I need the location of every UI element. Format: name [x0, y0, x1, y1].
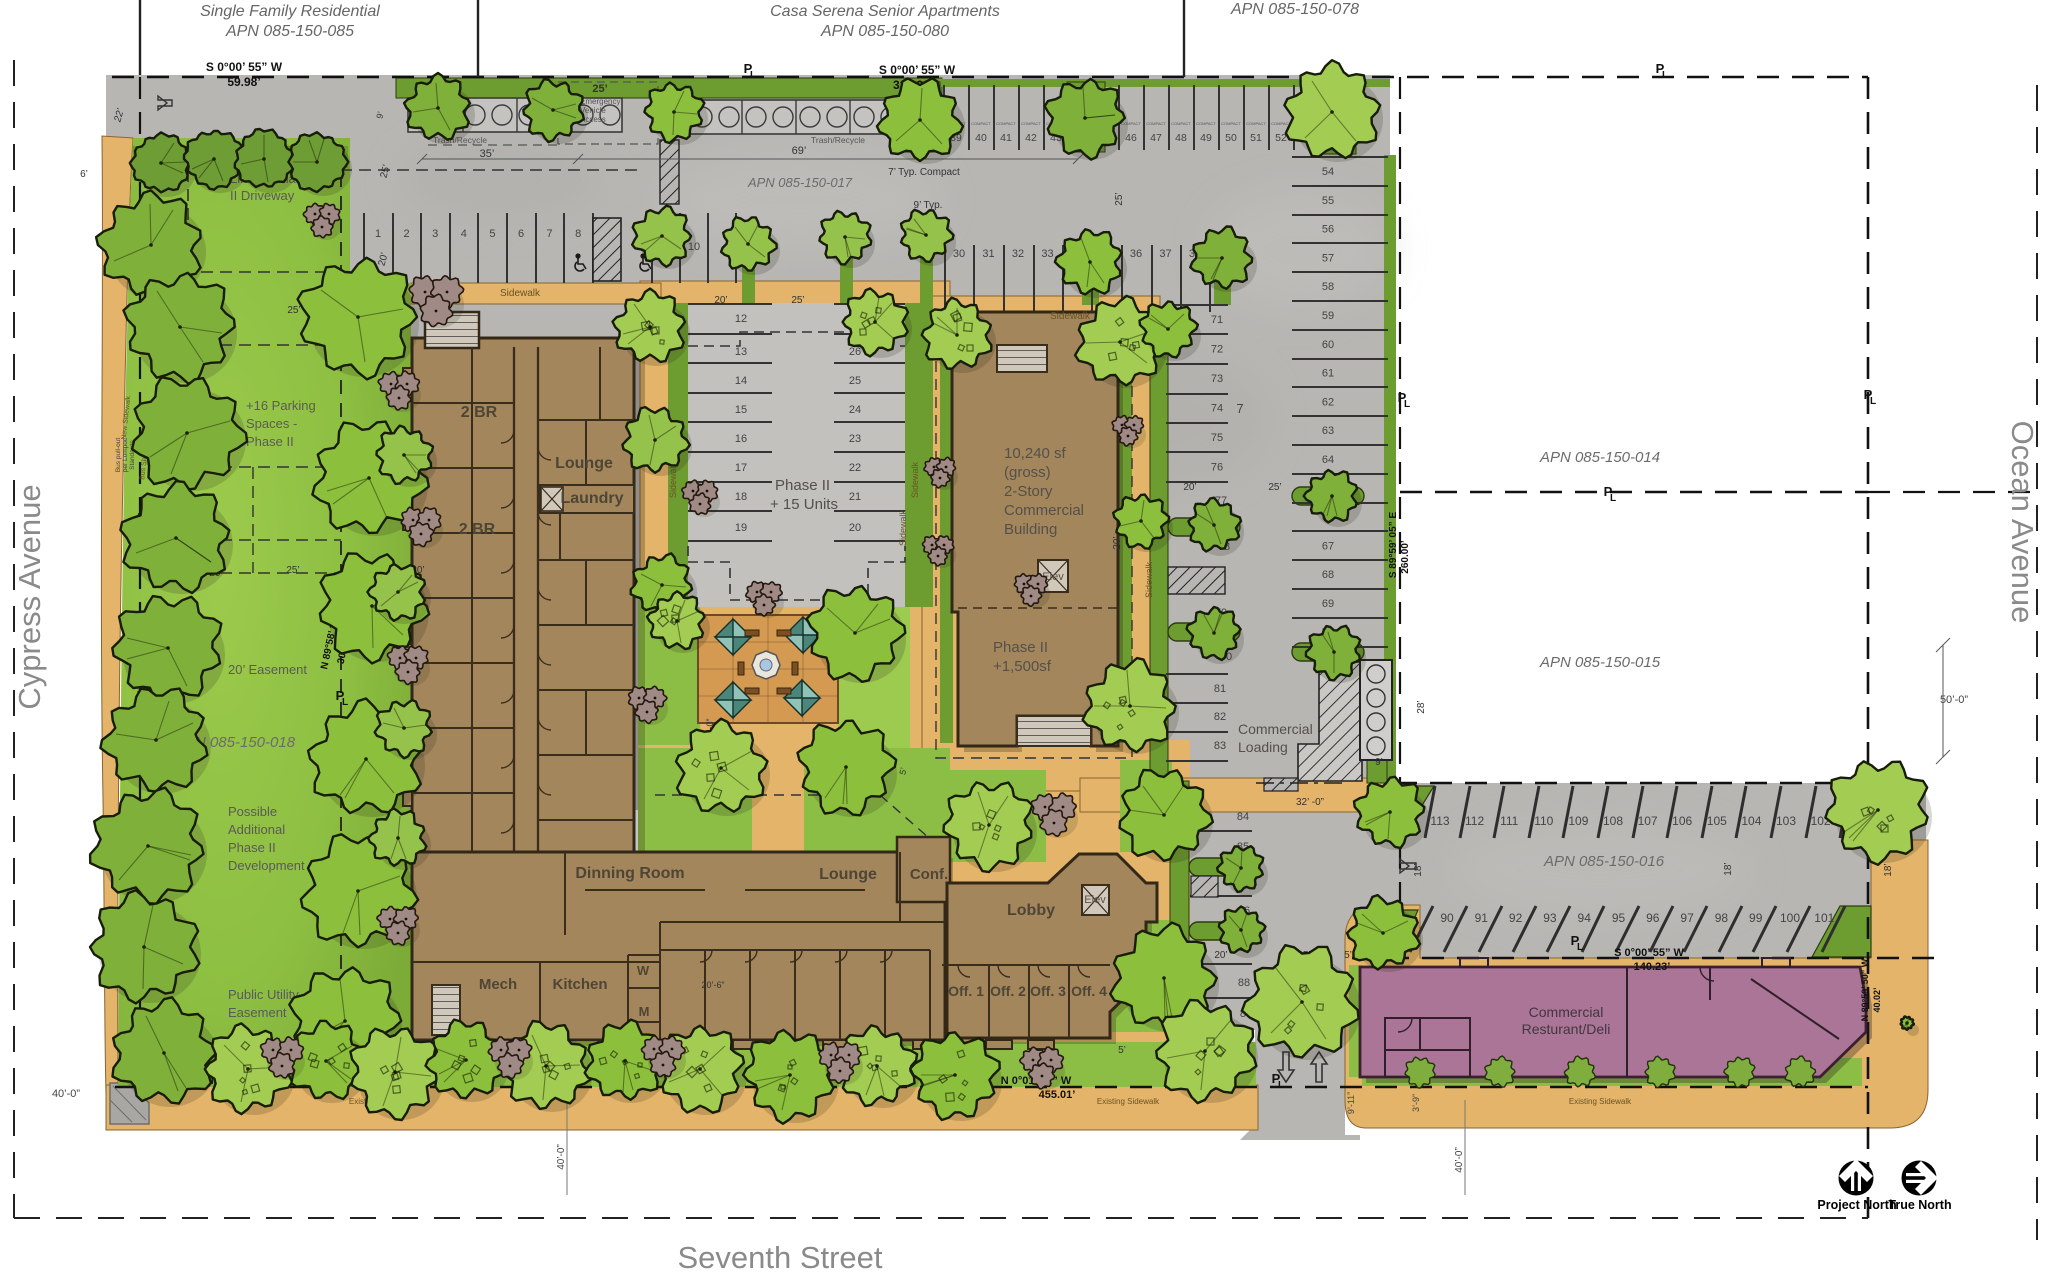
- svg-text:Sidewalk: Sidewalk: [910, 461, 920, 498]
- svg-text:97: 97: [1680, 911, 1694, 925]
- svg-text:55: 55: [1322, 195, 1334, 207]
- svg-text:1: 1: [375, 228, 381, 240]
- svg-text:L: L: [1870, 396, 1876, 407]
- svg-text:20’: 20’: [714, 295, 727, 306]
- svg-text:Spaces -: Spaces -: [246, 416, 297, 431]
- svg-text:64: 64: [1322, 454, 1334, 466]
- svg-text:COMPACT: COMPACT: [971, 121, 991, 126]
- svg-text:106: 106: [1672, 814, 1692, 828]
- svg-text:41: 41: [1000, 132, 1012, 144]
- svg-text:L: L: [1662, 70, 1668, 81]
- svg-text:Resturant/Deli: Resturant/Deli: [1522, 1021, 1611, 1037]
- svg-text:104: 104: [1741, 814, 1761, 828]
- svg-text:111: 111: [1500, 814, 1519, 828]
- svg-text:Casa Serena Senior Apartments: Casa Serena Senior Apartments: [770, 3, 1000, 20]
- svg-text:Off. 2: Off. 2: [990, 983, 1026, 999]
- svg-text:17: 17: [735, 462, 747, 474]
- svg-text:Laundry: Laundry: [560, 490, 623, 507]
- svg-text:40: 40: [975, 132, 987, 144]
- svg-text:83: 83: [1214, 740, 1226, 752]
- svg-text:Emergency: Emergency: [580, 97, 620, 106]
- svg-text:108: 108: [1603, 814, 1623, 828]
- svg-text:Possible: Possible: [228, 804, 277, 819]
- svg-text:Cypress Avenue: Cypress Avenue: [12, 484, 47, 709]
- svg-text:Phase II: Phase II: [775, 477, 830, 494]
- svg-text:20’-6”: 20’-6”: [701, 980, 724, 990]
- svg-text:67: 67: [1322, 540, 1334, 552]
- svg-text:Phase II: Phase II: [246, 434, 294, 449]
- svg-text:3: 3: [432, 228, 438, 240]
- svg-text:40.02’: 40.02’: [1872, 987, 1882, 1012]
- svg-text:S 0°00’ 55” W: S 0°00’ 55” W: [206, 60, 283, 74]
- svg-text:2 BR: 2 BR: [459, 521, 496, 538]
- svg-text:9’-11”: 9’-11”: [1346, 1092, 1356, 1114]
- svg-text:7: 7: [1236, 401, 1243, 416]
- svg-text:18’: 18’: [1723, 862, 1734, 875]
- svg-text:10,240 sf: 10,240 sf: [1004, 445, 1067, 462]
- svg-text:81: 81: [1214, 683, 1226, 695]
- svg-text:20: 20: [849, 522, 861, 534]
- svg-text:5’: 5’: [1344, 950, 1352, 961]
- svg-text:46: 46: [1125, 132, 1137, 144]
- svg-text:APN 085-150-014: APN 085-150-014: [1539, 449, 1660, 466]
- svg-text:W: W: [637, 963, 650, 978]
- svg-text:per Lompoc: per Lompoc: [122, 437, 129, 472]
- svg-text:91: 91: [1475, 911, 1489, 925]
- svg-text:63: 63: [1322, 425, 1334, 437]
- svg-text:37: 37: [1159, 248, 1171, 260]
- svg-text:51: 51: [1250, 132, 1262, 144]
- svg-text:Commercial: Commercial: [1238, 721, 1313, 737]
- svg-text:72: 72: [1211, 344, 1223, 356]
- svg-text:23: 23: [849, 433, 861, 445]
- svg-text:62: 62: [1322, 396, 1334, 408]
- svg-text:76: 76: [1211, 462, 1223, 474]
- svg-text:25’: 25’: [287, 305, 300, 316]
- svg-text:M: M: [639, 1004, 650, 1019]
- svg-text:Project North: Project North: [1817, 1198, 1896, 1212]
- svg-text:Lounge: Lounge: [555, 455, 613, 472]
- svg-text:22: 22: [849, 462, 861, 474]
- svg-text:19: 19: [735, 522, 747, 534]
- svg-text:105: 105: [1707, 814, 1727, 828]
- svg-text:59: 59: [1322, 310, 1334, 322]
- svg-text:COMPACT: COMPACT: [1221, 121, 1241, 126]
- svg-text:56: 56: [1322, 224, 1334, 236]
- svg-text:32: 32: [1012, 248, 1024, 260]
- svg-text:69’: 69’: [792, 145, 807, 157]
- svg-text:2 BR: 2 BR: [461, 404, 498, 421]
- svg-text:140.23’: 140.23’: [1634, 961, 1671, 973]
- svg-text:Bus pull-out: Bus pull-out: [115, 438, 122, 473]
- svg-text:36: 36: [1130, 248, 1142, 260]
- svg-text:49: 49: [1200, 132, 1212, 144]
- svg-text:Kitchen: Kitchen: [552, 976, 607, 993]
- svg-text:Ocean Avenue: Ocean Avenue: [2005, 421, 2040, 624]
- svg-text:L: L: [1278, 1080, 1284, 1091]
- svg-text:6’: 6’: [80, 169, 88, 180]
- svg-text:74: 74: [1211, 403, 1223, 415]
- svg-text:Dinning Room: Dinning Room: [575, 865, 684, 882]
- svg-text:25’: 25’: [286, 565, 299, 576]
- svg-text:40’-0”: 40’-0”: [52, 1088, 80, 1100]
- svg-text:True North: True North: [1888, 1198, 1951, 1212]
- svg-text:COMPACT: COMPACT: [1146, 121, 1166, 126]
- svg-text:82: 82: [1214, 711, 1226, 723]
- svg-text:21: 21: [849, 491, 861, 503]
- svg-text:93: 93: [1543, 911, 1557, 925]
- svg-text:59.98’: 59.98’: [227, 75, 260, 89]
- svg-text:84: 84: [1237, 811, 1249, 823]
- svg-text:Mech: Mech: [479, 976, 517, 993]
- svg-text:18’: 18’: [1413, 863, 1424, 876]
- svg-text:Lobby: Lobby: [1007, 902, 1055, 919]
- svg-text:50’-0”: 50’-0”: [1940, 694, 1968, 706]
- svg-text:40’-0”: 40’-0”: [556, 1144, 567, 1170]
- svg-text:18’: 18’: [1883, 863, 1894, 876]
- svg-text:88: 88: [1238, 977, 1250, 989]
- svg-text:APN 085-150-015: APN 085-150-015: [1539, 654, 1661, 671]
- svg-text:109: 109: [1568, 814, 1588, 828]
- svg-text:50: 50: [1225, 132, 1237, 144]
- svg-text:+1,500sf: +1,500sf: [993, 658, 1052, 675]
- svg-text:25’: 25’: [1268, 482, 1281, 493]
- svg-text:Loading: Loading: [1238, 739, 1288, 755]
- svg-text:60: 60: [1322, 339, 1334, 351]
- svg-text:25’: 25’: [1114, 192, 1125, 205]
- svg-text:N 89°59’ 50” W: N 89°59’ 50” W: [1860, 958, 1870, 1021]
- svg-text:12: 12: [735, 313, 747, 325]
- svg-text:71: 71: [1211, 314, 1223, 326]
- svg-text:Phase II: Phase II: [228, 840, 276, 855]
- svg-text:2-Story: 2-Story: [1004, 483, 1053, 500]
- svg-text:101: 101: [1814, 911, 1834, 925]
- svg-text:6: 6: [518, 228, 524, 240]
- svg-text:4: 4: [461, 228, 467, 240]
- svg-text:Existing Sidewalk: Existing Sidewalk: [1569, 1097, 1632, 1106]
- svg-text:L: L: [1404, 399, 1410, 410]
- svg-text:Additional: Additional: [228, 822, 285, 837]
- svg-text:7’ Typ. Compact: 7’ Typ. Compact: [888, 167, 960, 178]
- svg-text:68: 68: [1322, 569, 1334, 581]
- svg-text:Sidewalk: Sidewalk: [500, 288, 541, 299]
- svg-text:33: 33: [1041, 248, 1053, 260]
- svg-text:Building: Building: [1004, 521, 1057, 538]
- svg-text:9’: 9’: [1375, 757, 1383, 768]
- svg-text:20’: 20’: [1214, 950, 1227, 961]
- svg-text:112: 112: [1465, 814, 1484, 828]
- svg-text:98: 98: [1715, 911, 1729, 925]
- svg-text:40’-0”: 40’-0”: [1454, 1147, 1465, 1173]
- svg-text:58: 58: [1322, 281, 1334, 293]
- svg-text:16: 16: [735, 433, 747, 445]
- svg-text:54: 54: [1322, 166, 1334, 178]
- svg-text:75: 75: [1211, 432, 1223, 444]
- svg-text:455.01’: 455.01’: [1039, 1089, 1076, 1101]
- svg-text:260.00’: 260.00’: [1400, 540, 1411, 574]
- svg-text:20’ Easement: 20’ Easement: [228, 662, 307, 677]
- svg-text:APN 085-150-085: APN 085-150-085: [225, 23, 354, 40]
- svg-text:Off. 3: Off. 3: [1030, 983, 1066, 999]
- svg-text:20’: 20’: [1112, 536, 1123, 549]
- svg-text:5: 5: [489, 228, 495, 240]
- svg-text:61: 61: [1322, 368, 1334, 380]
- svg-text:Sidewalk: Sidewalk: [1144, 561, 1154, 598]
- svg-text:69: 69: [1322, 598, 1334, 610]
- svg-text:COMPACT: COMPACT: [996, 121, 1016, 126]
- svg-text:8: 8: [575, 228, 581, 240]
- svg-text:L: L: [342, 697, 348, 708]
- svg-text:100: 100: [1780, 911, 1800, 925]
- svg-text:107: 107: [1638, 814, 1658, 828]
- svg-text:28’: 28’: [1416, 700, 1427, 713]
- svg-text:18: 18: [735, 491, 747, 503]
- svg-text:L: L: [1610, 493, 1616, 504]
- svg-text:25’: 25’: [791, 295, 804, 306]
- svg-text:110: 110: [1534, 814, 1553, 828]
- svg-text:Single Family Residential: Single Family Residential: [200, 3, 380, 20]
- svg-text:Trash/Recycle: Trash/Recycle: [811, 135, 865, 145]
- svg-text:103: 103: [1776, 814, 1796, 828]
- svg-text:24: 24: [849, 404, 861, 416]
- svg-text:30: 30: [953, 248, 965, 260]
- svg-text:13: 13: [735, 346, 747, 358]
- svg-text:35’: 35’: [480, 148, 495, 160]
- svg-text:+ 15 Units: + 15 Units: [770, 496, 838, 513]
- svg-text:25: 25: [849, 375, 861, 387]
- svg-text:Phase II: Phase II: [993, 639, 1048, 656]
- svg-text:5’: 5’: [1118, 1045, 1126, 1056]
- svg-text:Existing Sidewalk: Existing Sidewalk: [1097, 1097, 1160, 1106]
- svg-text:APN 085-150-080: APN 085-150-080: [820, 23, 949, 40]
- svg-text:APN 085-150-017: APN 085-150-017: [747, 175, 853, 190]
- svg-text:Commercial: Commercial: [1529, 1004, 1604, 1020]
- svg-text:113: 113: [1430, 814, 1449, 828]
- svg-text:Development: Development: [228, 858, 305, 873]
- svg-text:15: 15: [735, 404, 747, 416]
- svg-text:94: 94: [1578, 911, 1592, 925]
- svg-text:L: L: [1577, 942, 1583, 953]
- svg-text:3’-9”: 3’-9”: [1411, 1094, 1421, 1112]
- svg-text:95: 95: [1612, 911, 1626, 925]
- svg-text:Commercial: Commercial: [1004, 502, 1084, 519]
- svg-text:APN 085-150-078: APN 085-150-078: [1230, 1, 1359, 18]
- svg-text:90: 90: [1440, 911, 1454, 925]
- svg-text:7: 7: [547, 228, 553, 240]
- svg-text:Conf.: Conf.: [910, 866, 948, 883]
- svg-text:31: 31: [982, 248, 994, 260]
- svg-text:COMPACT: COMPACT: [1246, 121, 1266, 126]
- svg-text:96: 96: [1646, 911, 1660, 925]
- svg-text:47: 47: [1150, 132, 1162, 144]
- svg-text:Lounge: Lounge: [819, 866, 877, 883]
- svg-text:S 89°59’ 05” E: S 89°59’ 05” E: [1388, 512, 1399, 579]
- svg-text:92: 92: [1509, 911, 1523, 925]
- svg-text:COMPACT: COMPACT: [1196, 121, 1216, 126]
- svg-text:Sidewalk: Sidewalk: [1050, 311, 1091, 322]
- svg-text:COMPACT: COMPACT: [1021, 121, 1041, 126]
- svg-text:Sidewalk: Sidewalk: [898, 509, 908, 546]
- svg-text:25’: 25’: [592, 83, 607, 95]
- svg-text:20’: 20’: [1183, 482, 1196, 493]
- svg-text:APN 085-150-016: APN 085-150-016: [1543, 853, 1665, 870]
- svg-text:L: L: [750, 70, 756, 81]
- svg-text:S 0°00’ 55” W: S 0°00’ 55” W: [879, 63, 956, 77]
- svg-text:+16 Parking: +16 Parking: [246, 398, 316, 413]
- svg-text:(gross): (gross): [1004, 464, 1051, 481]
- svg-text:9’ Typ.: 9’ Typ.: [914, 200, 943, 211]
- svg-text:S 0°00’ 55” W: S 0°00’ 55” W: [1614, 947, 1684, 959]
- svg-text:42: 42: [1025, 132, 1037, 144]
- svg-text:COMPACT: COMPACT: [1171, 121, 1191, 126]
- svg-text:Off. 1: Off. 1: [948, 983, 984, 999]
- svg-text:Easement: Easement: [228, 1005, 287, 1020]
- svg-text:32’ -0”: 32’ -0”: [1296, 797, 1324, 808]
- svg-text:99: 99: [1749, 911, 1763, 925]
- svg-text:48: 48: [1175, 132, 1187, 144]
- svg-text:Off. 4: Off. 4: [1071, 983, 1107, 999]
- svg-text:Seventh Street: Seventh Street: [677, 1240, 882, 1275]
- svg-text:2: 2: [404, 228, 410, 240]
- svg-text:73: 73: [1211, 373, 1223, 385]
- svg-text:14: 14: [735, 375, 747, 387]
- svg-text:57: 57: [1322, 252, 1334, 264]
- svg-text:Elev: Elev: [1084, 894, 1106, 906]
- svg-text:Public Utility: Public Utility: [228, 987, 299, 1002]
